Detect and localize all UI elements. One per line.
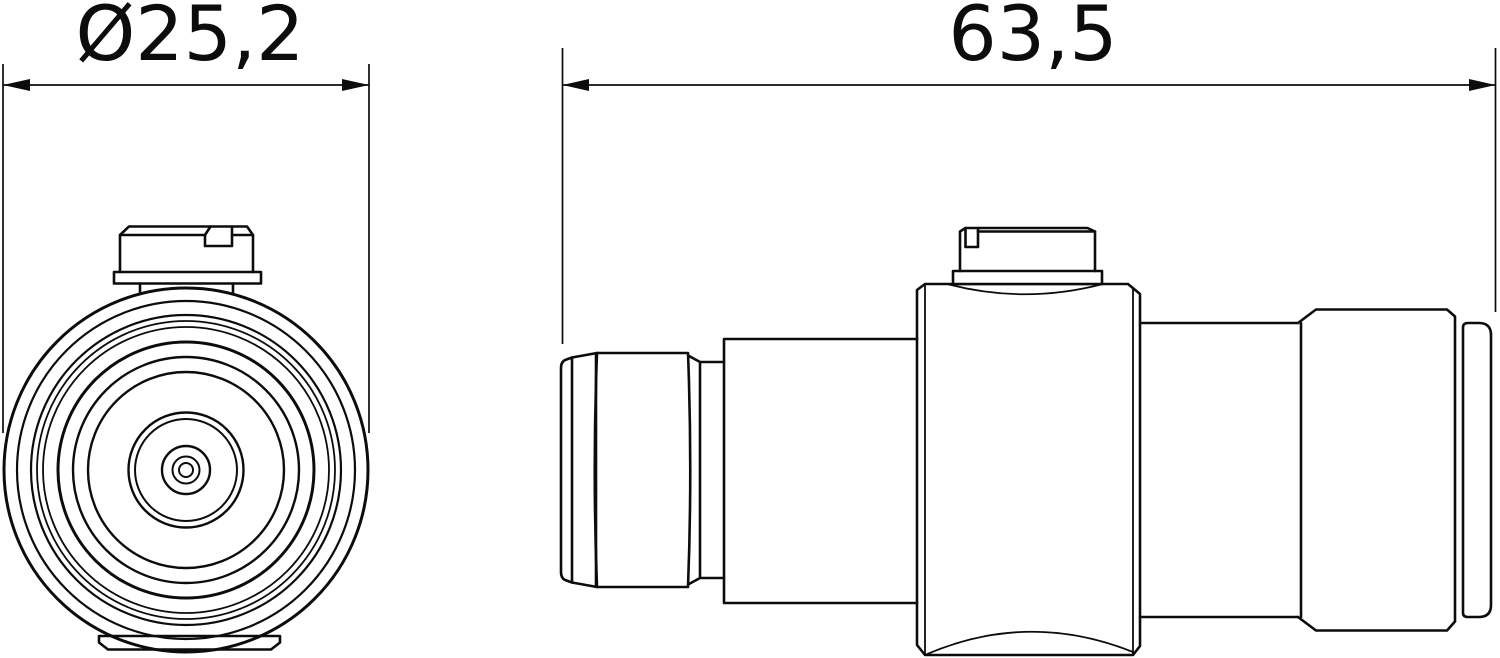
ring: [43, 327, 329, 613]
collar: [917, 284, 1140, 655]
right-hex-section: [1298, 310, 1455, 631]
end-cap-left: [561, 358, 572, 583]
side-dimension-label: 63,5: [948, 0, 1117, 78]
ring: [73, 357, 299, 583]
ring: [17, 301, 355, 639]
side-arrowhead-right: [1469, 79, 1496, 91]
side-knob-body: [960, 228, 1095, 271]
ring: [31, 315, 341, 625]
knob-notch: [205, 227, 232, 247]
front-arrowhead-right: [342, 79, 369, 91]
collar-surface-curve-bottom: [925, 632, 1133, 655]
hex-outline: [1298, 310, 1455, 631]
ring-center-pin: [179, 463, 193, 477]
ring: [88, 372, 284, 568]
mid-cylinder: [724, 339, 917, 603]
ring-inner-contact: [162, 446, 210, 494]
side-dimension: 63,5: [563, 0, 1496, 344]
step-ring: [689, 356, 724, 584]
drawing-svg: Ø25,2: [0, 0, 1500, 658]
taper-band: [572, 353, 597, 587]
ring: [58, 342, 314, 598]
side-knob: [953, 228, 1102, 284]
front-arrowhead-left: [3, 79, 30, 91]
front-knob: [114, 227, 261, 295]
side-left-connector: [561, 353, 724, 587]
technical-drawing: Ø25,2: [0, 0, 1500, 658]
front-view: Ø25,2: [3, 0, 369, 652]
collar-outline: [917, 284, 1140, 655]
right-cylinder: [1140, 323, 1298, 617]
knob-flange: [114, 272, 261, 284]
coupling-nut-barrel: [595, 353, 691, 587]
side-knob-notch: [966, 228, 979, 247]
front-dimension-label: Ø25,2: [75, 0, 304, 78]
side-arrowhead-left: [563, 79, 590, 91]
ring: [129, 413, 244, 528]
ring: [37, 321, 335, 619]
ring-pin-collar: [173, 457, 200, 484]
front-circles: [4, 288, 368, 652]
front-dimension: Ø25,2: [3, 0, 369, 433]
side-knob-flange: [953, 271, 1102, 284]
side-view: 63,5: [561, 0, 1496, 655]
right-end-cap: [1463, 323, 1491, 617]
collar-surface-curve-top: [949, 285, 1101, 295]
ring: [135, 419, 237, 521]
